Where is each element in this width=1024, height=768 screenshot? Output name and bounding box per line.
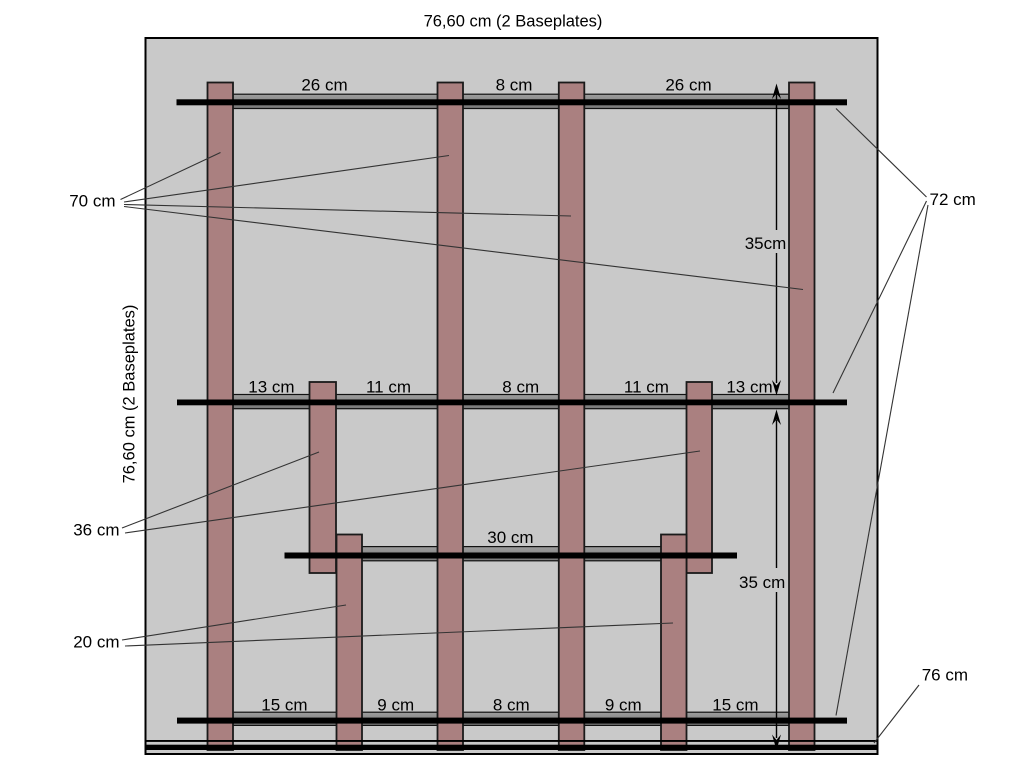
- svg-text:35 cm: 35 cm: [739, 573, 785, 592]
- svg-text:13 cm: 13 cm: [726, 378, 772, 397]
- svg-text:8 cm: 8 cm: [493, 695, 530, 714]
- svg-text:8 cm: 8 cm: [502, 378, 539, 397]
- svg-text:11 cm: 11 cm: [624, 378, 669, 397]
- svg-text:11 cm: 11 cm: [366, 378, 411, 397]
- svg-text:8 cm: 8 cm: [496, 75, 533, 94]
- svg-text:36 cm: 36 cm: [73, 521, 119, 540]
- svg-text:15 cm: 15 cm: [261, 695, 307, 714]
- svg-text:9 cm: 9 cm: [377, 695, 414, 714]
- svg-text:76,60 cm (2 Baseplates): 76,60 cm (2 Baseplates): [424, 13, 603, 31]
- svg-text:30 cm: 30 cm: [487, 528, 533, 547]
- svg-text:26 cm: 26 cm: [665, 75, 711, 94]
- svg-text:20 cm: 20 cm: [73, 633, 119, 652]
- svg-text:9 cm: 9 cm: [605, 695, 642, 714]
- svg-text:15 cm: 15 cm: [712, 695, 758, 714]
- svg-text:26 cm: 26 cm: [301, 75, 347, 94]
- svg-text:70 cm: 70 cm: [69, 192, 115, 211]
- svg-text:13 cm: 13 cm: [248, 378, 294, 397]
- svg-text:76,60 cm (2 Baseplates): 76,60 cm (2 Baseplates): [121, 305, 139, 484]
- svg-text:76 cm: 76 cm: [922, 665, 968, 684]
- svg-text:72 cm: 72 cm: [930, 190, 976, 209]
- svg-text:35cm: 35cm: [745, 234, 787, 253]
